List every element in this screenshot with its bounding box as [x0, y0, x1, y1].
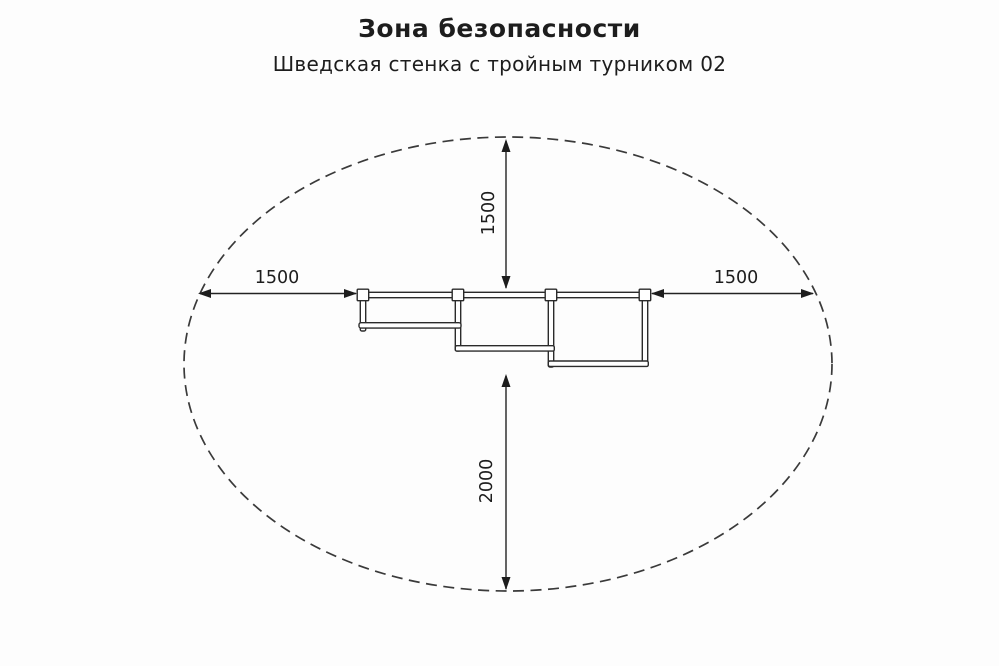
frame-bar-vertical: [548, 298, 553, 367]
dimension-label-bottom: 2000: [477, 459, 497, 504]
frame-rail-middle: [455, 346, 554, 351]
dimension-bottom: 2000: [477, 374, 511, 590]
post-marker: [452, 289, 464, 301]
dimension-label-right: 1500: [714, 268, 759, 288]
arrow-down-icon: [502, 276, 511, 289]
arrow-right-icon: [344, 289, 357, 298]
arrow-left-icon: [198, 289, 211, 298]
safety-zone-diagram-page: Зона безопасности Шведская стенка с трой…: [0, 0, 999, 666]
post-marker: [639, 289, 651, 301]
dimension-left: 1500: [198, 268, 357, 298]
dimension-label-left: 1500: [255, 268, 300, 288]
frame-rail-left: [359, 323, 461, 328]
dimension-top: 1500: [479, 139, 511, 289]
frame-rail-right: [548, 361, 648, 366]
dimension-label-top: 1500: [479, 191, 499, 236]
post-marker: [545, 289, 557, 301]
dimension-right: 1500: [651, 268, 814, 298]
safety-zone-drawing: 1500 2000 1500 1500: [0, 0, 999, 666]
equipment-plan: [357, 289, 651, 367]
post-marker: [357, 289, 369, 301]
arrow-left-icon: [651, 289, 664, 298]
safety-zone-boundary: [184, 137, 832, 591]
arrow-down-icon: [502, 577, 511, 590]
arrow-up-icon: [502, 139, 511, 152]
arrow-up-icon: [502, 374, 511, 387]
arrow-right-icon: [801, 289, 814, 298]
top-bar: [363, 292, 645, 297]
frame-bar-vertical: [642, 298, 647, 366]
